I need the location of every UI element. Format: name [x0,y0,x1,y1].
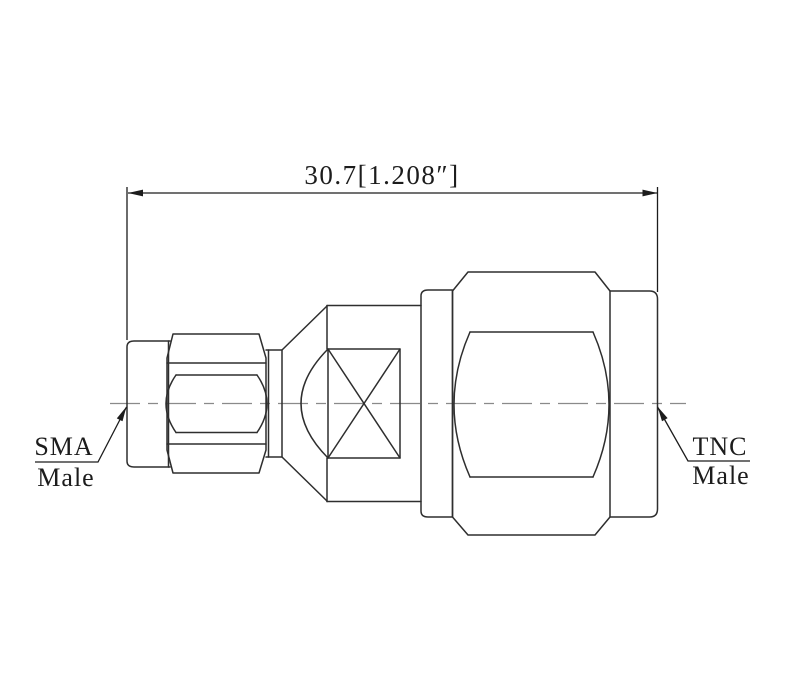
transition-cone-bottom [282,457,327,501]
sma-leader-arrow [117,407,127,422]
transition-cone-top [282,306,327,350]
tnc-label-line2: Male [692,461,749,490]
tnc-leader-arrow [658,407,668,422]
technical-drawing-page: 30.7[1.208″] SMA Male TNC Male [0,0,800,679]
sma-label-line2: Male [37,463,94,492]
dimension-arrow-left [128,190,143,197]
tnc-hex-side-arc-right [593,332,609,477]
sma-label-line1: SMA [34,432,93,461]
tnc-label-line1: TNC [693,432,748,461]
dimension-arrow-right [643,190,658,197]
adapter-technical-drawing: 30.7[1.208″] SMA Male TNC Male [0,0,800,679]
annotation-text: 30.7[1.208″] SMA Male TNC Male [34,160,749,492]
dimension-and-leaders [35,187,750,462]
dimension-label: 30.7[1.208″] [304,160,459,190]
tnc-hex-side-arc-left [454,332,470,477]
